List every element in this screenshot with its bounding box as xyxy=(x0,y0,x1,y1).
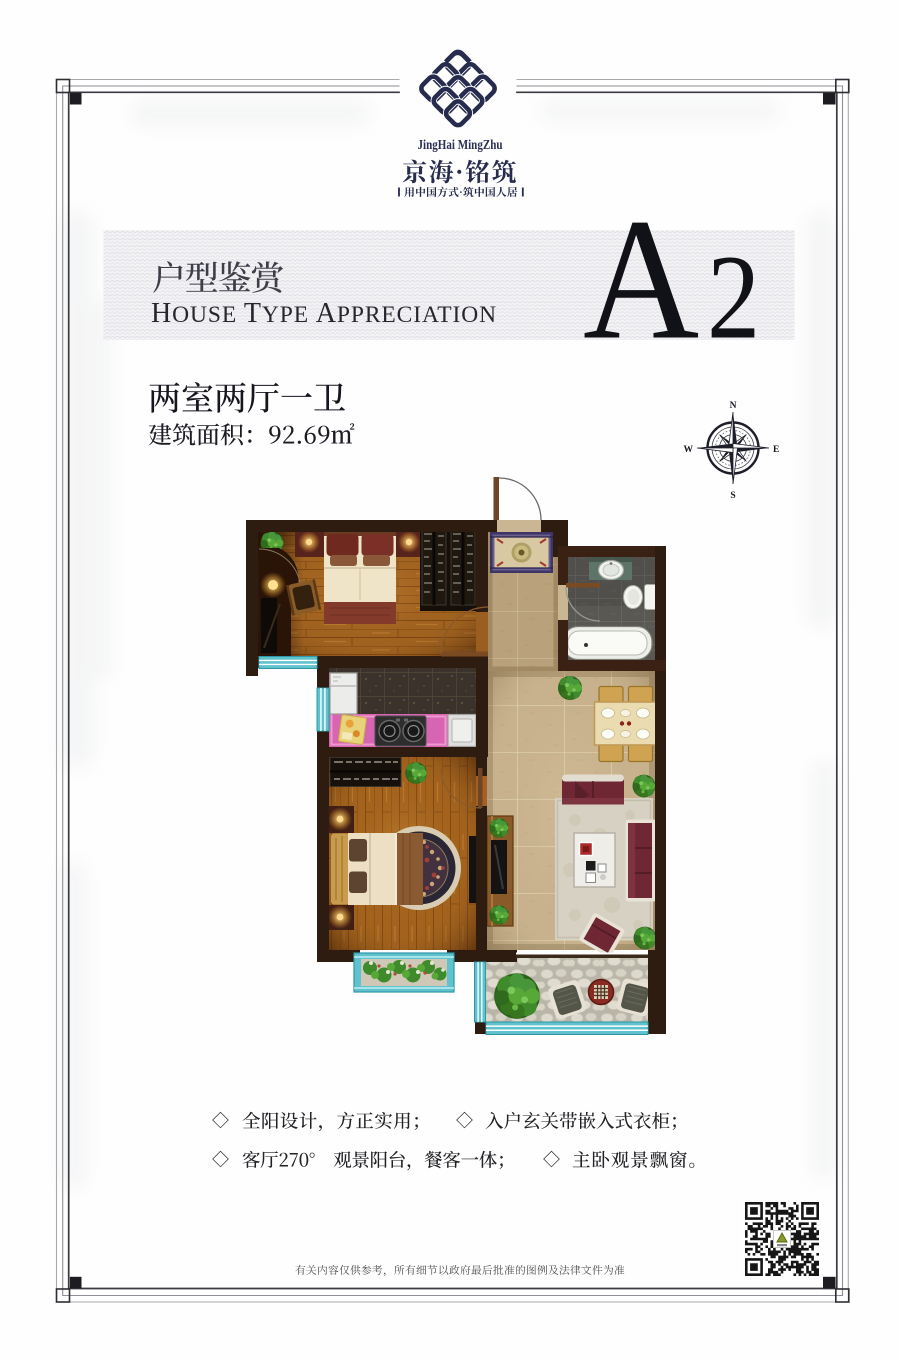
svg-text:2: 2 xyxy=(707,229,760,364)
svg-text:A: A xyxy=(583,184,699,376)
svg-text:HOUSE TYPE APPRECIATION: HOUSE TYPE APPRECIATION xyxy=(151,298,497,329)
svg-text:S: S xyxy=(730,491,735,501)
svg-text:E: E xyxy=(773,445,779,455)
svg-text:N: N xyxy=(730,401,737,411)
svg-text:W: W xyxy=(684,445,694,455)
svg-text:JingHai MingZhu: JingHai MingZhu xyxy=(418,138,503,153)
